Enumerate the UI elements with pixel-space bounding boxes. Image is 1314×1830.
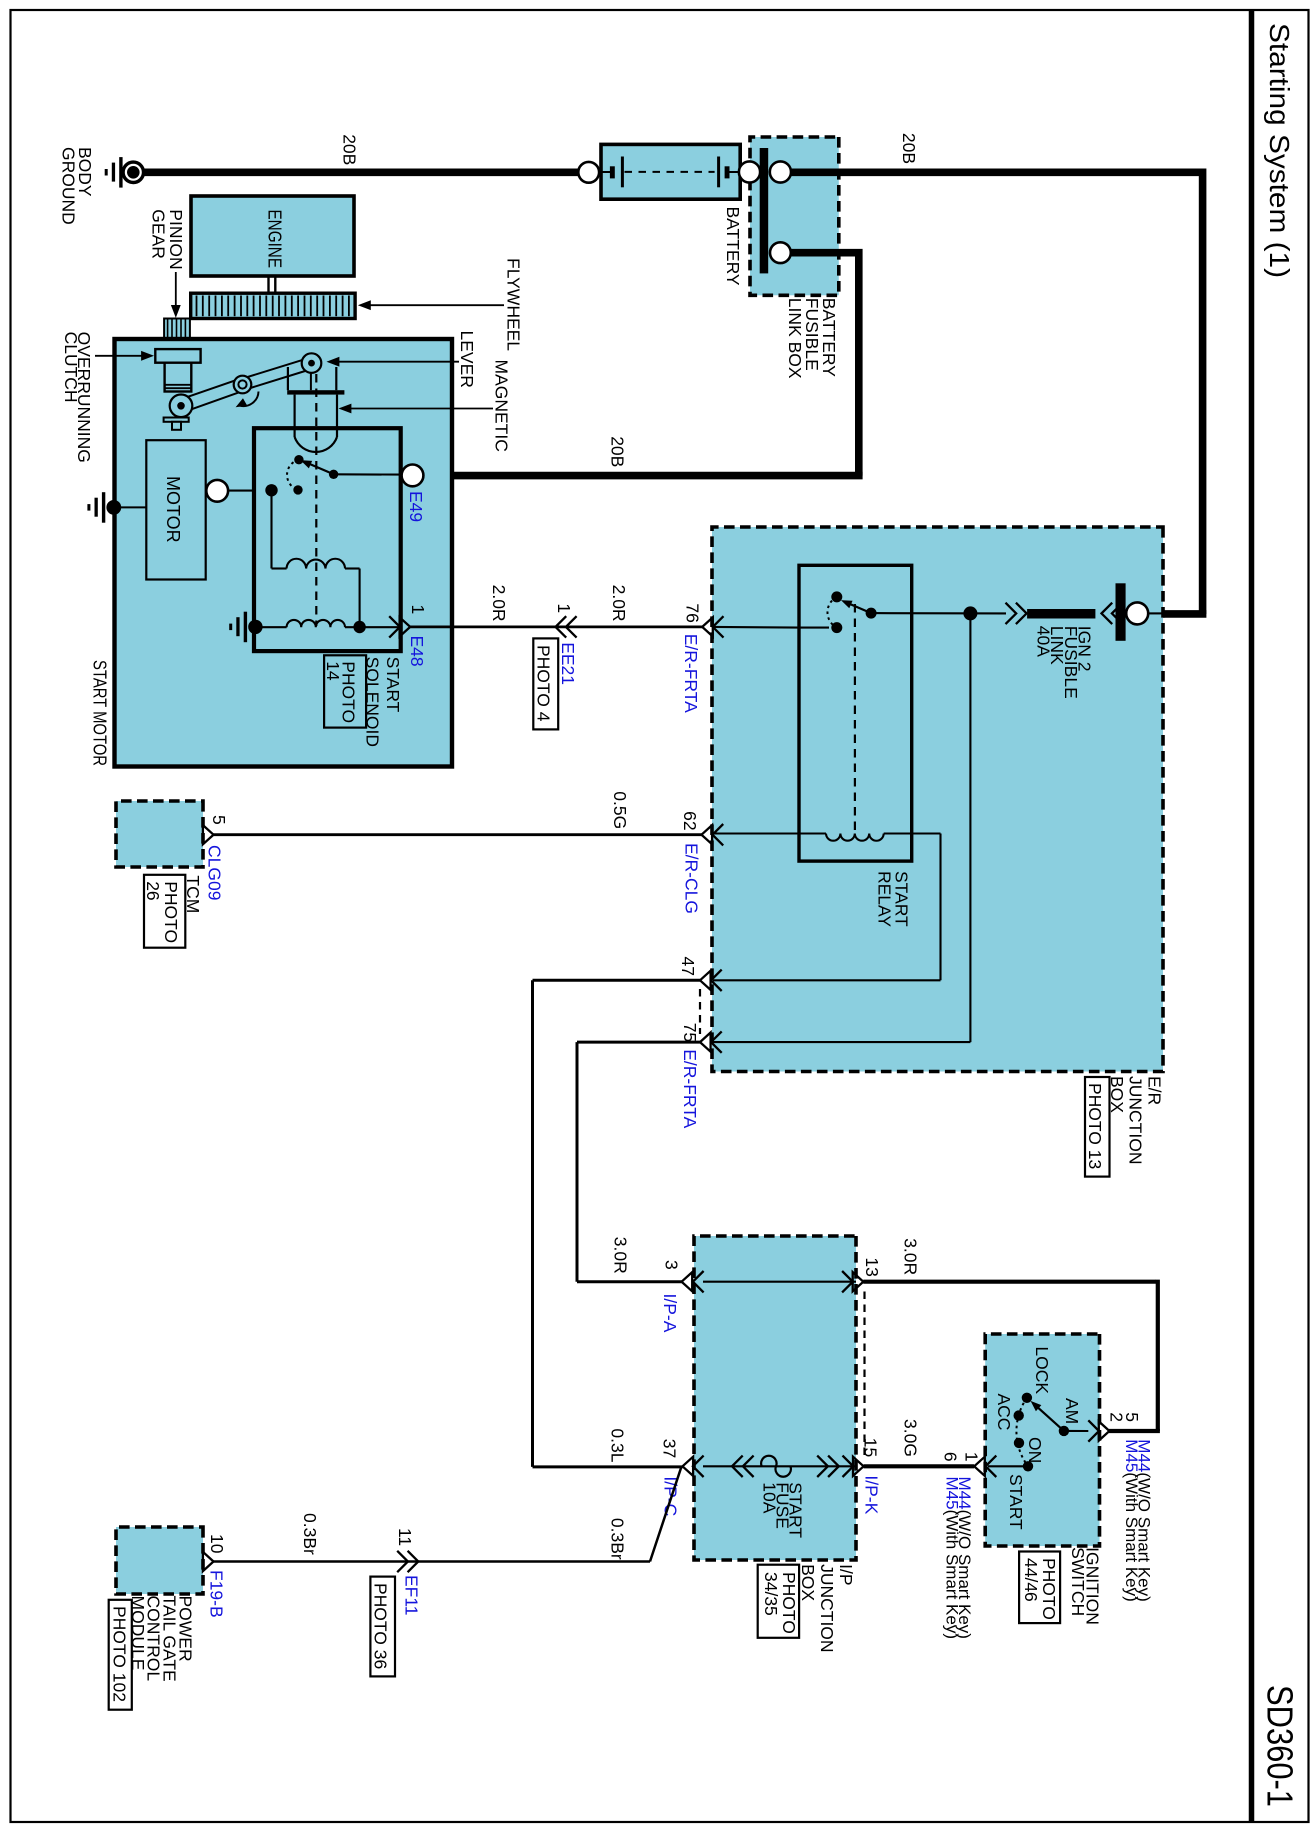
svg-text:13: 13 (862, 1257, 882, 1281)
svg-text:3: 3 (662, 1260, 682, 1275)
svg-text:76: 76 (683, 603, 703, 627)
svg-text:START RELAY: START RELAY (874, 871, 911, 932)
svg-text:62: 62 (680, 811, 700, 835)
svg-text:E48: E48 (407, 636, 427, 672)
svg-text:1: 1 (408, 605, 428, 620)
svg-text:PHOTO 13: PHOTO 13 (1085, 1083, 1105, 1174)
svg-text:PHOTO 102: PHOTO 102 (110, 1606, 130, 1707)
svg-text:ON: ON (1025, 1437, 1045, 1468)
svg-text:CLG09: CLG09 (205, 845, 225, 905)
svg-text:M44(W/O Smart Key) M45(With Sm: M44(W/O Smart Key) M45(With Smart Key) (943, 1477, 974, 1644)
svg-text:SD360-1: SD360-1 (1260, 1685, 1301, 1817)
svg-text:2: 2 (1107, 1412, 1127, 1427)
svg-text:START: START (1006, 1474, 1026, 1534)
svg-text:MAGNETIC: MAGNETIC (492, 360, 512, 457)
svg-text:E49: E49 (406, 491, 426, 527)
svg-text:20B: 20B (340, 134, 360, 170)
svg-text:Starting System (1): Starting System (1) (1264, 23, 1295, 286)
svg-text:START MOTOR: START MOTOR (90, 660, 110, 771)
svg-text:1: 1 (554, 603, 574, 618)
svg-text:PHOTO 4: PHOTO 4 (534, 645, 554, 726)
svg-text:0.3L: 0.3L (608, 1428, 628, 1466)
svg-text:11: 11 (395, 1528, 415, 1551)
svg-text:E/R-FRTA: E/R-FRTA (681, 634, 701, 717)
svg-text:0.5G: 0.5G (610, 791, 630, 834)
svg-text:1: 1 (962, 1452, 982, 1467)
svg-text:F19-B: F19-B (207, 1570, 227, 1623)
svg-text:FLYWHEEL: FLYWHEEL (504, 258, 524, 355)
svg-text:3.0R: 3.0R (900, 1238, 920, 1280)
svg-text:ENGINE: ENGINE (265, 210, 285, 274)
svg-text:LOCK: LOCK (1032, 1346, 1052, 1399)
svg-text:2.0R: 2.0R (609, 585, 629, 627)
svg-text:E/R-FRTA: E/R-FRTA (680, 1049, 700, 1132)
svg-text:EF11: EF11 (402, 1575, 422, 1620)
svg-text:BATTERY FUSIBLE LINK BOX: BATTERY FUSIBLE LINK BOX (785, 298, 839, 384)
svg-text:PHOTO 36: PHOTO 36 (371, 1583, 391, 1674)
svg-text:BATTERY: BATTERY (723, 207, 743, 291)
svg-text:I/P-A: I/P-A (660, 1294, 680, 1337)
svg-text:37: 37 (660, 1439, 680, 1463)
svg-text:20B: 20B (608, 436, 628, 472)
svg-text:I/P-K: I/P-K (862, 1475, 882, 1519)
svg-text:M44(W/O Smart Key) M45(With Sm: M44(W/O Smart Key) M45(With Smart Key) (1122, 1439, 1153, 1606)
svg-text:E/R-CLG: E/R-CLG (682, 843, 702, 919)
svg-text:AM: AM (1062, 1398, 1082, 1429)
svg-text:2.0R: 2.0R (489, 585, 509, 627)
svg-text:0.3Br: 0.3Br (300, 1513, 320, 1560)
svg-text:ACC: ACC (994, 1394, 1014, 1436)
svg-text:6: 6 (941, 1452, 961, 1467)
svg-text:0.3Br: 0.3Br (608, 1518, 628, 1565)
svg-text:47: 47 (678, 957, 698, 981)
svg-text:3.0R: 3.0R (611, 1237, 631, 1279)
svg-text:20B: 20B (899, 133, 919, 169)
svg-text:3.0G: 3.0G (900, 1419, 920, 1462)
svg-text:10: 10 (207, 1534, 227, 1558)
svg-text:IGNITION SWITCH: IGNITION SWITCH (1068, 1547, 1103, 1630)
svg-text:LEVER: LEVER (457, 331, 477, 393)
svg-text:EE21: EE21 (558, 642, 578, 690)
svg-text:5: 5 (209, 815, 229, 830)
svg-text:MOTOR: MOTOR (163, 476, 183, 548)
